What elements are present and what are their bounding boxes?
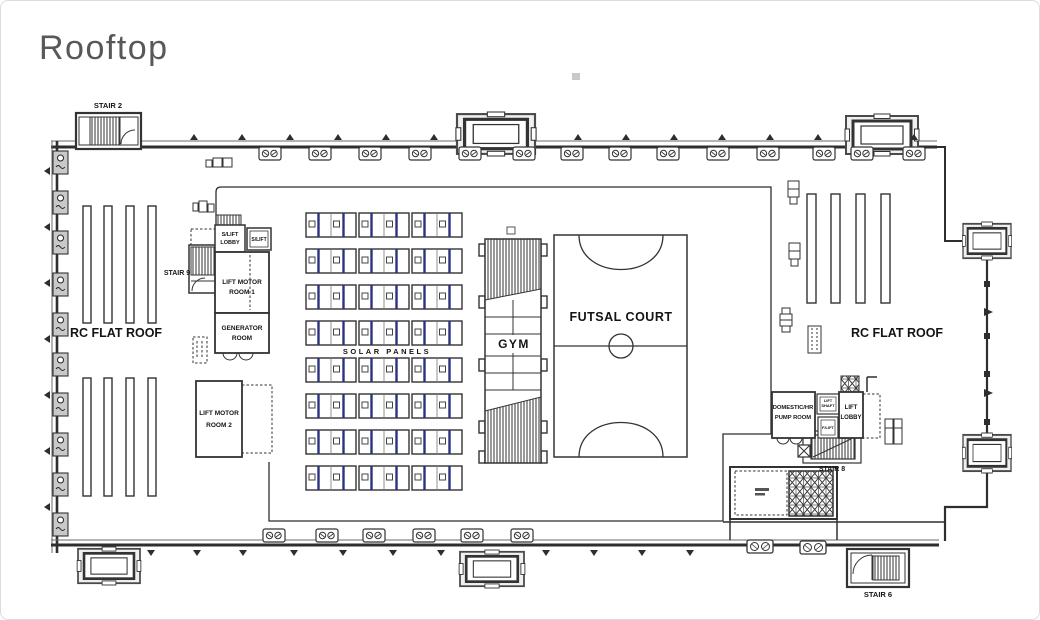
stair-9-block <box>189 229 217 293</box>
label-stair-8: STAIR 8 <box>819 466 845 473</box>
equipment-icon <box>788 181 799 204</box>
label-f-lift: F/LIFT <box>822 425 835 430</box>
label-lift-motor-room-1-a: LIFT MOTOR <box>222 279 262 286</box>
label-slift-lobby-2: LOBBY <box>220 240 240 246</box>
label-generator-room-a: GENERATOR <box>222 325 263 332</box>
lift-motor-room-2 <box>196 381 242 457</box>
label-lift-motor-room-2-a: LIFT MOTOR <box>199 410 239 417</box>
equipment-icon <box>193 201 214 212</box>
label-lift-shaft-b: SHAFT <box>821 403 835 408</box>
label-stair-9: STAIR 9 <box>164 270 190 277</box>
generator-room <box>215 313 269 353</box>
stair-2-block <box>76 113 141 149</box>
grid-box-icon <box>808 326 821 353</box>
label-rc-flat-roof-left: RC FLAT ROOF <box>70 326 162 340</box>
label-slift-lobby-1: S/LIFT <box>222 232 239 238</box>
label-pump-room-b: PUMP ROOM <box>775 415 811 421</box>
roof-hatch-mark <box>572 73 580 80</box>
equipment-icon <box>206 158 232 167</box>
grille-zone <box>789 471 833 516</box>
slift-lobby-room <box>215 225 245 252</box>
label-lift-motor-room-2-b: ROOM 2 <box>206 422 232 429</box>
equipment-icon <box>885 419 902 444</box>
label-rc-flat-roof-right: RC FLAT ROOF <box>851 326 943 340</box>
label-solar-panels: SOLAR PANELS <box>343 347 431 356</box>
label-generator-room-b: ROOM <box>232 335 252 342</box>
label-lift-motor-room-1-b: ROOM 1 <box>229 289 255 296</box>
label-lift-lobby-b: LOBBY <box>841 415 862 421</box>
label-stair-6: STAIR 6 <box>864 590 892 599</box>
label-slift: S/LIFT <box>251 237 266 243</box>
label-gym: GYM <box>498 337 530 351</box>
stair-6-block <box>847 549 909 587</box>
label-pump-room-a: DOMESTIC/HR <box>773 405 814 411</box>
futsal-court <box>554 235 687 457</box>
label-stair-2: STAIR 2 <box>94 101 122 110</box>
floorplan: STAIR 2 STAIR 9 STAIR 8 STAIR 6 S/LIFT L… <box>1 1 1039 619</box>
equipment-area <box>730 467 837 540</box>
water-tank-icon <box>780 308 792 332</box>
app-window: Rooftop <box>0 0 1040 620</box>
equipment-icon <box>789 243 800 266</box>
close-box-icon <box>798 445 810 457</box>
misc-equipment-icons <box>193 73 902 444</box>
label-futsal-court: FUTSAL COURT <box>570 310 673 324</box>
label-lift-lobby-a: LIFT <box>845 405 858 411</box>
